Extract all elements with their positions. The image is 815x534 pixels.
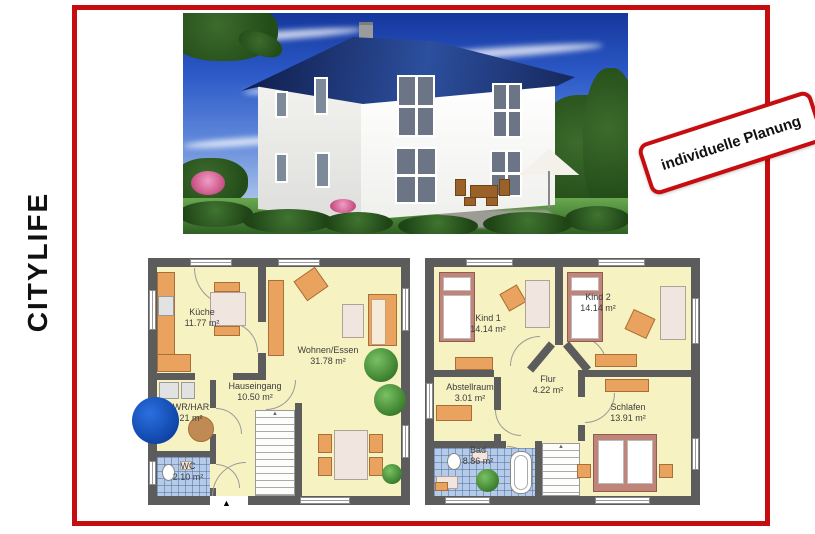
window — [595, 497, 650, 504]
coffee-table — [342, 304, 364, 338]
window — [402, 425, 409, 458]
dresser — [605, 379, 649, 392]
cabinet — [435, 482, 448, 491]
chair — [318, 457, 332, 476]
wall — [295, 403, 302, 496]
pillow — [443, 277, 471, 291]
blue-circle-logo — [132, 397, 179, 444]
dining-table — [334, 430, 368, 480]
chair — [369, 434, 383, 453]
wall — [210, 434, 216, 464]
dresser — [595, 354, 637, 367]
house-front-wall — [361, 83, 555, 220]
washer — [159, 382, 179, 399]
window — [275, 91, 288, 118]
window — [314, 77, 328, 115]
wall — [494, 434, 501, 441]
kitchen-sink — [158, 296, 174, 316]
dryer — [181, 382, 195, 399]
garden-chair — [486, 197, 498, 206]
plant — [364, 348, 398, 382]
window — [402, 288, 409, 331]
window — [300, 497, 350, 504]
brand-title: CITYLIFE — [22, 192, 54, 332]
room-label-hauseingang: Hauseingang10.50 m² — [228, 381, 281, 404]
window — [492, 83, 522, 138]
garden-bush — [483, 212, 573, 234]
window — [692, 298, 699, 344]
patio-door — [395, 147, 437, 204]
wall — [555, 267, 563, 345]
flower-bush — [330, 199, 356, 213]
room-label-bad: Bad8.86 m² — [463, 445, 494, 468]
wardrobe — [660, 286, 686, 340]
window — [466, 259, 513, 266]
floorplan-ground: Küche11.77 m² Wohnen/Essen31.78 m² Hause… — [148, 258, 410, 505]
garden-chair — [455, 179, 466, 196]
room-label-kind1: Kind 114.14 m² — [470, 313, 506, 336]
window — [598, 259, 645, 266]
cabinet — [268, 280, 284, 356]
wall — [258, 267, 266, 322]
room-label-flur: Flur4.22 m² — [533, 374, 564, 397]
kitchen-counter — [157, 354, 191, 372]
garden-bush — [323, 212, 393, 234]
room-label-schlafen: Schlafen13.91 m² — [610, 402, 646, 425]
wall — [434, 370, 494, 377]
bathtub — [510, 451, 532, 494]
window — [397, 75, 435, 137]
plant — [382, 464, 402, 484]
toilet — [447, 453, 461, 470]
room-label-wc: WC2.10 m² — [173, 461, 204, 484]
window — [426, 383, 433, 419]
window — [315, 152, 330, 188]
window — [278, 259, 320, 266]
window — [190, 259, 232, 266]
sofa — [368, 294, 397, 346]
room-label-wohnen: Wohnen/Essen31.78 m² — [298, 345, 359, 368]
nightstand — [659, 464, 673, 478]
room-label-kueche: Küche11.77 m² — [185, 307, 220, 330]
window — [149, 290, 156, 330]
window — [275, 153, 288, 183]
kitchen-counter — [157, 272, 175, 367]
mattress — [627, 440, 653, 484]
window — [149, 461, 156, 485]
wall — [535, 441, 542, 496]
plant — [476, 469, 499, 492]
staircase — [542, 443, 580, 496]
mattress — [598, 440, 624, 484]
wall — [578, 425, 585, 441]
nightstand — [577, 464, 591, 478]
wall — [233, 373, 266, 380]
garden-bush — [565, 206, 628, 232]
wall — [210, 380, 216, 408]
wall — [578, 370, 691, 377]
wall — [157, 373, 195, 380]
wall — [578, 377, 585, 397]
shelf — [436, 405, 472, 421]
parasol-pole — [548, 171, 550, 208]
double-bed — [593, 434, 657, 492]
garden-chair — [464, 197, 476, 206]
side-table — [525, 280, 550, 328]
chair — [214, 282, 240, 292]
chair — [318, 434, 332, 453]
flower-bush — [191, 171, 225, 195]
flyer-page: CITYLIFE — [0, 0, 815, 534]
plant — [374, 384, 406, 416]
floorplan-upper: Kind 114.14 m² Kind 214.14 m² Abstellrau… — [425, 258, 700, 505]
house-rendering — [183, 13, 628, 234]
window — [445, 497, 490, 504]
window — [692, 438, 699, 470]
garden-bush — [243, 209, 333, 233]
entrance-arrow: ▲ — [222, 498, 231, 508]
garden-chair — [499, 179, 510, 196]
tree — [583, 68, 628, 218]
room-label-kind2: Kind 214.14 m² — [580, 292, 616, 315]
room-label-abstellraum: Abstellraum3.01 m² — [446, 382, 494, 405]
sofa-cushions — [371, 299, 386, 345]
mattress — [443, 295, 471, 339]
desk — [455, 357, 493, 370]
staircase — [255, 410, 295, 496]
chair — [369, 457, 383, 476]
pillow — [571, 277, 599, 291]
garden-bush — [398, 215, 478, 234]
wall — [494, 377, 501, 410]
